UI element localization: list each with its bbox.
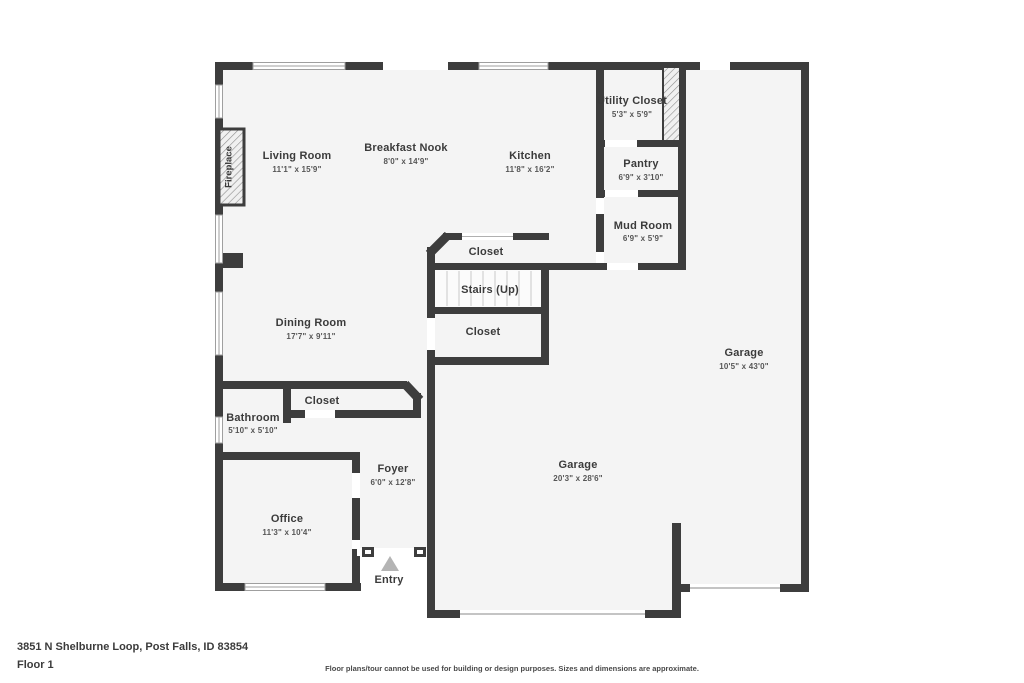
window xyxy=(245,584,325,591)
window xyxy=(216,85,223,118)
svg-text:Bathroom: Bathroom xyxy=(226,412,280,424)
fireplace-label: Fireplace xyxy=(224,146,235,188)
svg-text:11'8" x 16'2": 11'8" x 16'2" xyxy=(505,165,554,174)
svg-text:11'1" x 15'9": 11'1" x 15'9" xyxy=(272,165,321,174)
entry-label: Entry xyxy=(374,574,404,586)
svg-text:Closet: Closet xyxy=(469,246,504,258)
window xyxy=(253,63,345,70)
svg-text:Foyer: Foyer xyxy=(378,463,409,475)
property-address: 3851 N Shelburne Loop, Post Falls, ID 83… xyxy=(17,641,248,653)
room-label-closet-upper: Closet xyxy=(469,246,504,258)
svg-text:Closet: Closet xyxy=(305,395,340,407)
svg-text:Mud Room: Mud Room xyxy=(614,220,672,232)
fireplace: Fireplace xyxy=(219,129,244,205)
svg-text:Utility Closet: Utility Closet xyxy=(597,95,667,107)
window xyxy=(479,63,548,70)
room-label-closet-lower: Closet xyxy=(466,326,501,338)
svg-text:6'9" x 3'10": 6'9" x 3'10" xyxy=(619,173,664,182)
room-label-bathroom: Bathroom 5'10" x 5'10" xyxy=(226,412,280,435)
svg-text:Kitchen: Kitchen xyxy=(509,150,551,162)
svg-text:20'3" x 28'6": 20'3" x 28'6" xyxy=(553,474,603,483)
svg-text:Pantry: Pantry xyxy=(623,158,659,170)
svg-text:10'5" x 43'0": 10'5" x 43'0" xyxy=(719,362,769,371)
svg-text:Living Room: Living Room xyxy=(263,150,332,162)
svg-text:6'0" x 12'8": 6'0" x 12'8" xyxy=(371,478,416,487)
disclaimer-text: Floor plans/tour cannot be used for buil… xyxy=(0,664,1024,673)
svg-text:Breakfast Nook: Breakfast Nook xyxy=(364,142,448,154)
svg-text:6'9" x 5'9": 6'9" x 5'9" xyxy=(623,234,663,243)
svg-text:Dining Room: Dining Room xyxy=(276,317,347,329)
room-label-stairs: Stairs (Up) xyxy=(461,284,519,296)
svg-text:5'3" x 5'9": 5'3" x 5'9" xyxy=(612,110,652,119)
window xyxy=(216,417,223,443)
svg-text:5'10" x 5'10": 5'10" x 5'10" xyxy=(228,426,278,435)
svg-text:Office: Office xyxy=(271,513,303,525)
floor-plan-page: Fireplace Entry Living Room 11'1" x 15'9… xyxy=(0,0,1024,683)
svg-text:Closet: Closet xyxy=(466,326,501,338)
floor-plan-drawing: Fireplace Entry Living Room 11'1" x 15'9… xyxy=(0,0,1024,683)
svg-text:Stairs (Up): Stairs (Up) xyxy=(461,284,519,296)
svg-text:17'7" x 9'11": 17'7" x 9'11" xyxy=(286,332,335,341)
svg-text:Garage: Garage xyxy=(558,459,597,471)
svg-text:11'3" x 10'4": 11'3" x 10'4" xyxy=(262,528,311,537)
svg-text:8'0" x 14'9": 8'0" x 14'9" xyxy=(384,157,429,166)
window xyxy=(216,292,223,355)
room-label-closet-bath: Closet xyxy=(305,395,340,407)
entry-direction-icon xyxy=(381,556,399,571)
svg-text:Garage: Garage xyxy=(724,347,763,359)
window xyxy=(216,215,223,263)
